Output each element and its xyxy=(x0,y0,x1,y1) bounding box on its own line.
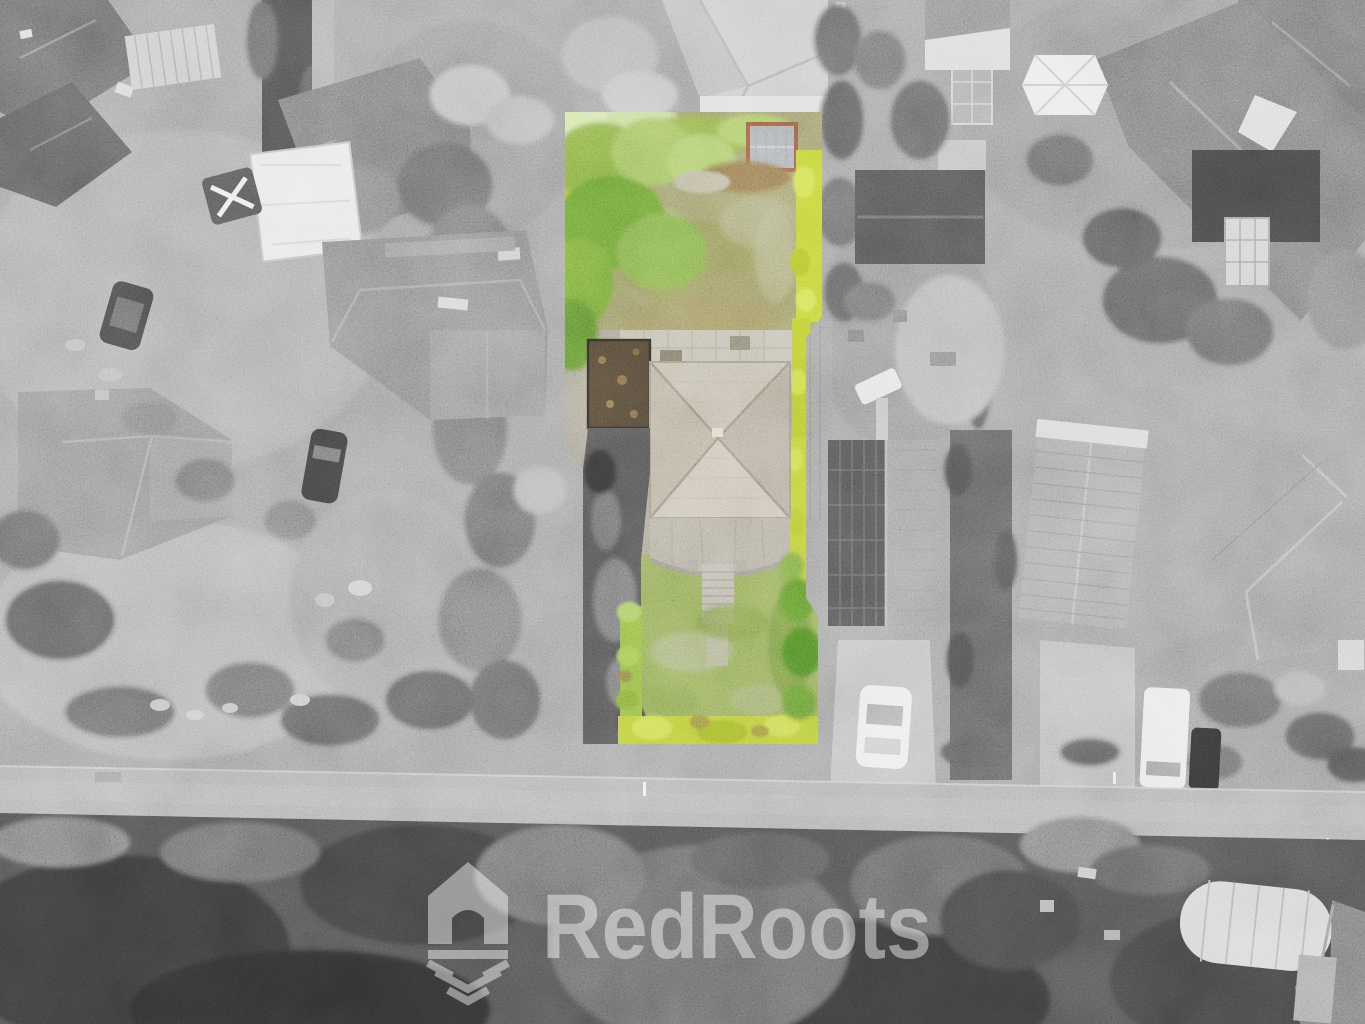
watermark-brand-text: RedRoots xyxy=(542,876,932,978)
aerial-photo: RedRoots xyxy=(0,0,1365,1024)
grain-overlay xyxy=(0,0,1365,1024)
